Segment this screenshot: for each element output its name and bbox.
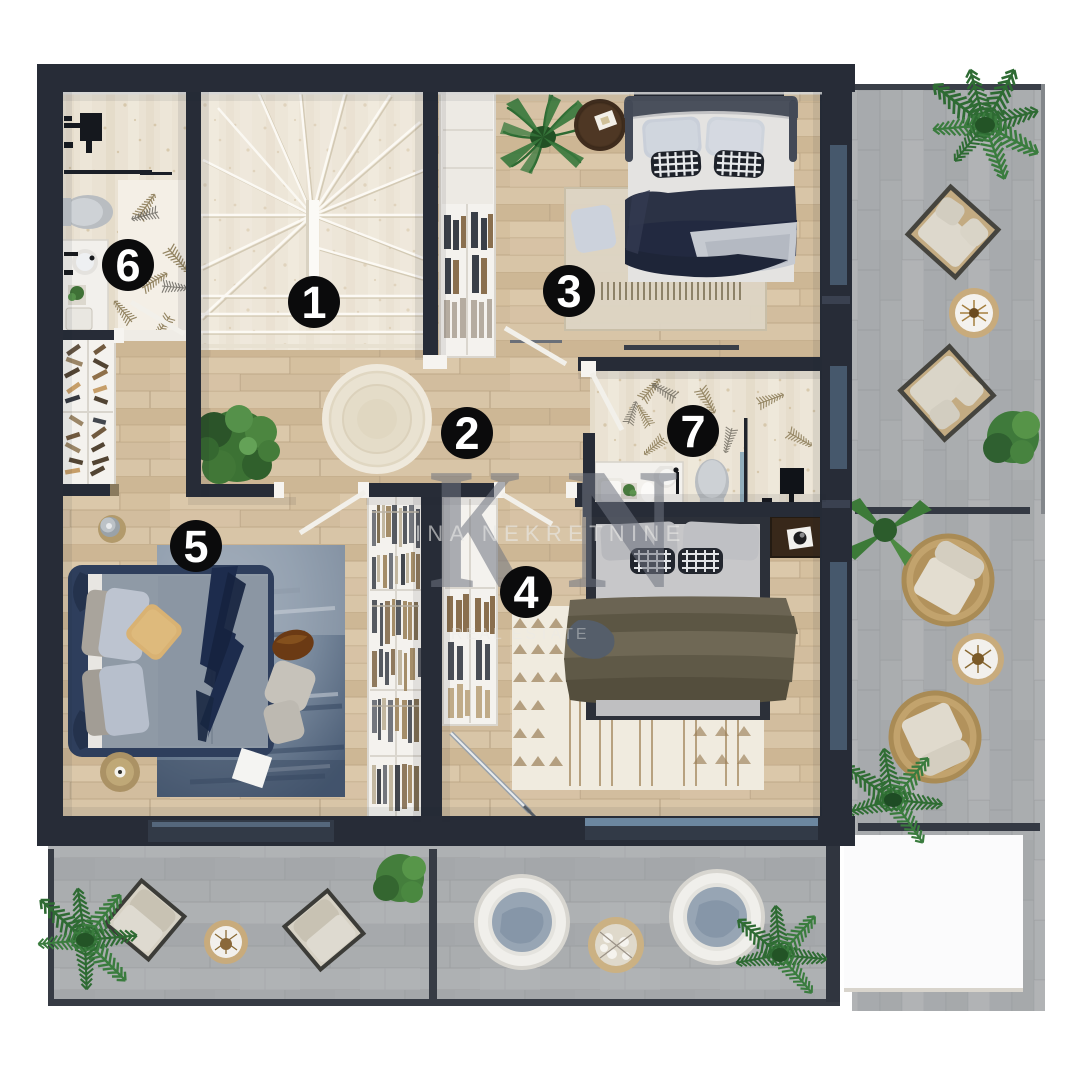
svg-text:7: 7: [680, 406, 705, 457]
svg-text:INA NEKRETNINE: INA NEKRETNINE: [415, 521, 687, 546]
svg-text:3: 3: [556, 266, 581, 317]
svg-text:2: 2: [454, 408, 479, 459]
svg-text:4: 4: [513, 567, 538, 618]
svg-text:5: 5: [183, 521, 208, 572]
svg-text:1: 1: [301, 277, 326, 328]
svg-text:REAL ESTATE: REAL ESTATE: [451, 626, 590, 643]
svg-text:6: 6: [115, 240, 140, 291]
